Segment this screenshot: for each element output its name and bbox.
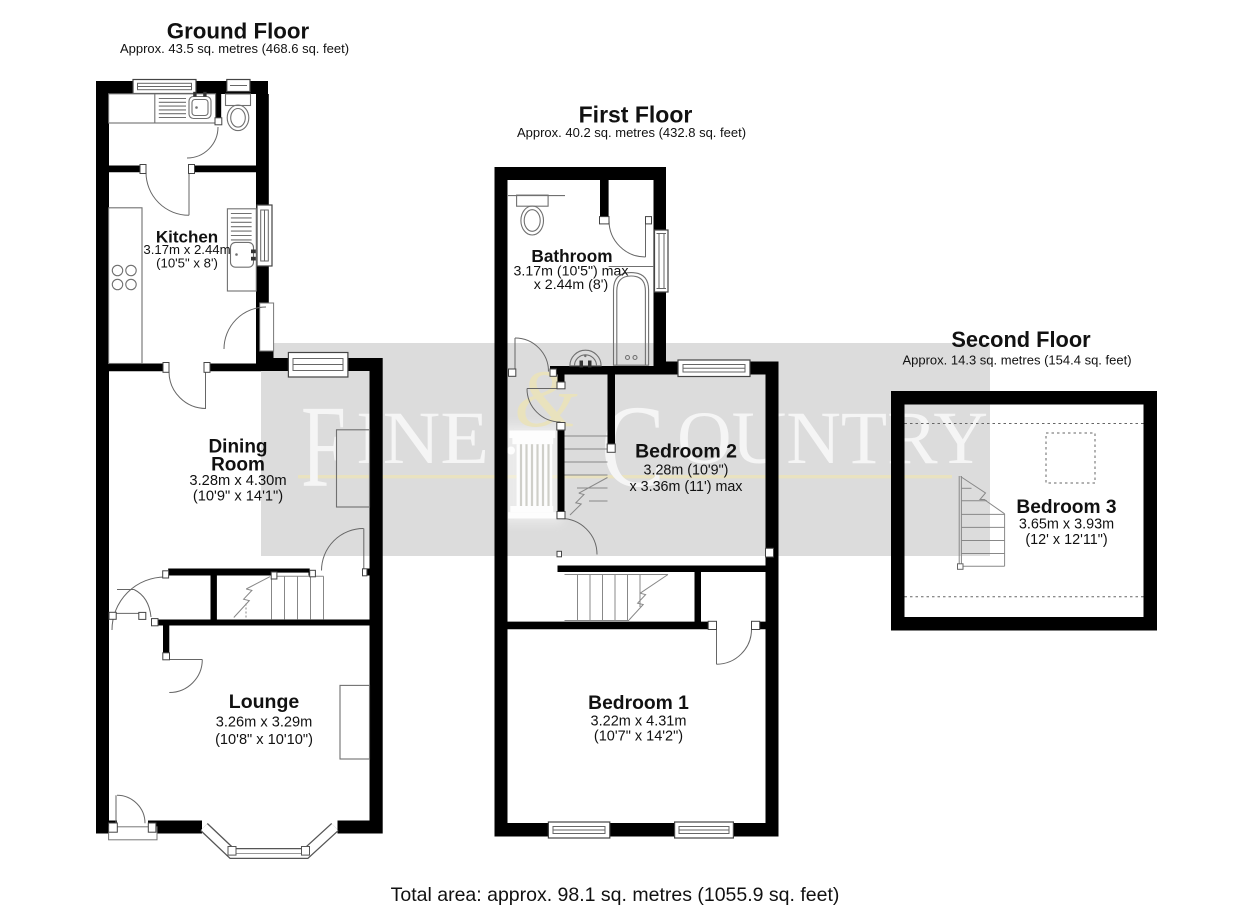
- svg-text:First Floor: First Floor: [579, 102, 693, 128]
- svg-text:Second Floor: Second Floor: [951, 327, 1091, 352]
- svg-text:Bedroom 1: Bedroom 1: [588, 693, 689, 714]
- svg-text:Approx. 14.3 sq. metres (154.4: Approx. 14.3 sq. metres (154.4 sq. feet): [902, 353, 1131, 368]
- svg-text:3.65m x 3.93m: 3.65m x 3.93m: [1019, 517, 1114, 533]
- svg-text:x 3.36m (11') max: x 3.36m (11') max: [630, 479, 743, 495]
- svg-text:(10'8" x 10'10"): (10'8" x 10'10"): [215, 732, 313, 748]
- svg-text:Ground Floor: Ground Floor: [167, 19, 310, 44]
- svg-text:Approx. 40.2 sq. metres (432.8: Approx. 40.2 sq. metres (432.8 sq. feet): [517, 125, 746, 140]
- svg-text:Lounge: Lounge: [229, 691, 300, 713]
- svg-text:3.28m x 4.30m: 3.28m x 4.30m: [189, 473, 286, 489]
- svg-text:Bedroom 2: Bedroom 2: [635, 441, 737, 463]
- svg-text:Approx. 43.5 sq. metres (468.6: Approx. 43.5 sq. metres (468.6 sq. feet): [120, 41, 349, 56]
- svg-text:F: F: [301, 381, 346, 512]
- svg-text:3.26m x 3.29m: 3.26m x 3.29m: [216, 715, 313, 731]
- svg-text:Bedroom 3: Bedroom 3: [1016, 497, 1116, 518]
- svg-text:(12' x 12'11"): (12' x 12'11"): [1025, 532, 1107, 548]
- svg-text:Total area: approx. 98.1 sq. m: Total area: approx. 98.1 sq. metres (105…: [391, 884, 840, 906]
- svg-text:3.28m (10'9"): 3.28m (10'9"): [644, 463, 729, 479]
- svg-text:3.22m x 4.31m: 3.22m x 4.31m: [591, 714, 687, 730]
- svg-text:(10'5" x 8'): (10'5" x 8'): [156, 255, 218, 270]
- svg-text:x 2.44m (8'): x 2.44m (8'): [534, 277, 608, 293]
- svg-text:(10'9" x 14'1"): (10'9" x 14'1"): [193, 489, 283, 505]
- svg-text:(10'7" x 14'2"): (10'7" x 14'2"): [594, 729, 683, 745]
